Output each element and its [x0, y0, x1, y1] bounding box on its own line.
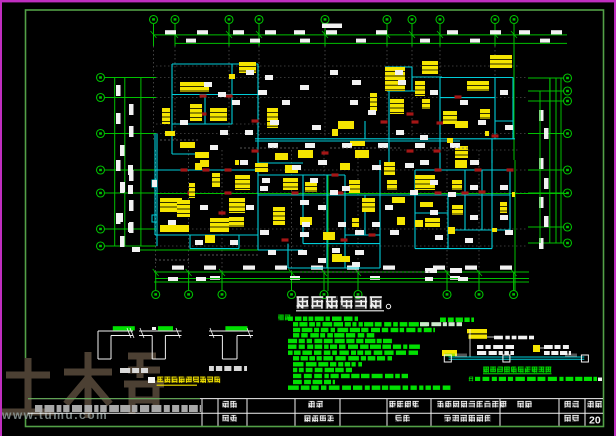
svg-text:www.tumu.com: www.tumu.com	[1, 408, 108, 422]
svg-text:20: 20	[589, 415, 601, 427]
